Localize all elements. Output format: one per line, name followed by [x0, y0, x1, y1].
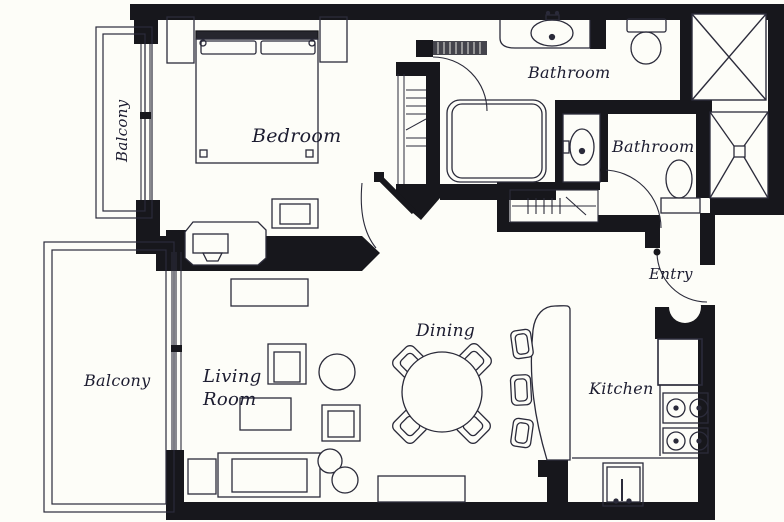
toilet-1 — [627, 19, 666, 64]
room-label-bathroom-second: Bathroom — [612, 137, 695, 156]
nightstand-right — [320, 17, 347, 62]
room-label-entry: Entry — [649, 265, 693, 283]
ottoman-2 — [332, 467, 358, 493]
armchair-1 — [268, 344, 306, 384]
bathtub — [447, 100, 546, 182]
shower-x-1 — [692, 14, 766, 100]
bar-stool-2 — [510, 374, 532, 405]
louvered-vent — [433, 41, 487, 55]
sliding-door-bedroom — [140, 44, 151, 200]
kitchen-sink — [603, 463, 643, 506]
end-table — [188, 459, 216, 494]
floor-plan: Balcony Bedroom Bathroom Bathroom Entry … — [0, 0, 784, 522]
sideboard — [378, 476, 465, 502]
bar-stool-3 — [510, 418, 534, 449]
sofa — [218, 453, 320, 497]
breakfast-bar — [510, 306, 570, 460]
armchair-2 — [322, 405, 360, 441]
vanity-sink-2 — [563, 114, 600, 182]
dining-set — [378, 341, 494, 502]
room-label-balcony-upper: Balcony — [113, 102, 131, 162]
dining-table — [402, 352, 482, 432]
console-table — [231, 279, 308, 306]
nightstand-left — [167, 17, 194, 63]
room-label-bathroom-main: Bathroom — [528, 63, 611, 82]
room-label-living-room: Living Room — [203, 365, 273, 411]
floor-plan-drawing — [0, 0, 784, 522]
sliding-door-living — [171, 252, 182, 450]
refrigerator — [658, 339, 702, 385]
room-label-kitchen: Kitchen — [589, 379, 654, 398]
side-table-round — [319, 354, 355, 390]
toilet-2 — [661, 160, 700, 213]
desk-computer — [185, 222, 266, 265]
kitchen-fixtures — [572, 339, 708, 506]
room-label-bedroom: Bedroom — [252, 125, 341, 147]
desk-chair — [272, 199, 318, 228]
room-label-dining: Dining — [416, 321, 475, 341]
shower-2 — [710, 112, 768, 198]
entry-niche-curve — [669, 291, 701, 323]
wardrobe-shelves — [398, 74, 426, 184]
room-label-balcony-lower: Balcony — [84, 371, 150, 390]
bar-stool-1 — [510, 329, 534, 360]
